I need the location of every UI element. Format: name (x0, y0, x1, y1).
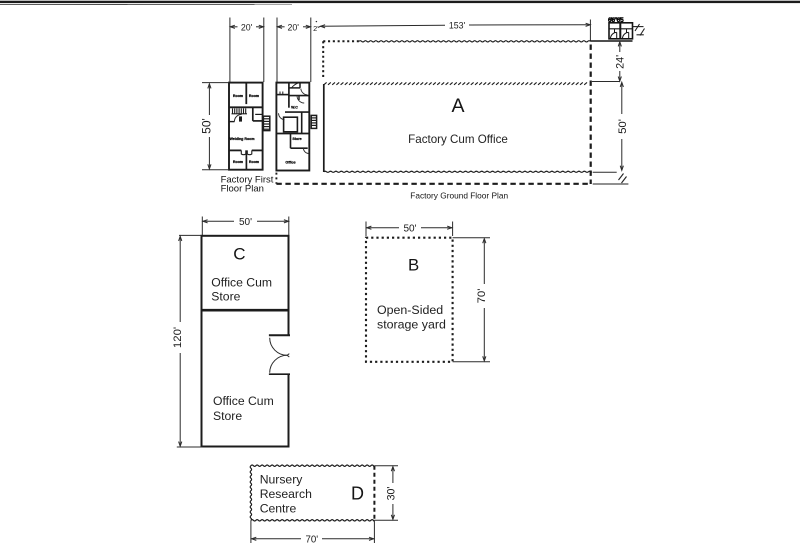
svg-text:Store: Store (213, 409, 242, 423)
svg-text:Centre: Centre (260, 501, 297, 515)
svg-text:Office Cum: Office Cum (211, 276, 272, 290)
svg-text:120': 120' (172, 327, 184, 348)
svg-text:D: D (351, 484, 364, 504)
svg-text:Store: Store (211, 289, 240, 303)
svg-text:Nursery: Nursery (260, 472, 304, 486)
svg-text:50': 50' (617, 119, 629, 134)
svg-text:Office Cum: Office Cum (213, 394, 274, 408)
svg-text:Open-Sided: Open-Sided (377, 303, 443, 317)
svg-text:50': 50' (239, 217, 252, 228)
svg-text:50': 50' (403, 223, 416, 234)
svg-text:70': 70' (305, 534, 318, 545)
svg-text:Welding Room: Welding Room (229, 137, 254, 141)
svg-text:C: C (233, 245, 245, 264)
svg-text:Store: Store (292, 137, 301, 141)
svg-text:W.C: W.C (291, 106, 298, 110)
svg-text:Room: Room (233, 160, 243, 164)
svg-text:6'6”6'5: 6'6”6'5 (608, 17, 624, 24)
svg-text:Room: Room (249, 160, 259, 164)
svg-text:2': 2' (313, 24, 319, 33)
svg-text:storage yard: storage yard (377, 317, 446, 331)
svg-text:20': 20' (287, 23, 299, 33)
svg-text:153': 153' (449, 21, 466, 31)
svg-text:Factory Ground Floor Plan: Factory Ground Floor Plan (410, 191, 508, 201)
svg-text:24': 24' (615, 55, 627, 69)
svg-text:Factory Cum Office: Factory Cum Office (408, 133, 508, 146)
svg-text:A: A (451, 95, 464, 117)
svg-text:Room: Room (249, 94, 259, 98)
svg-text:Floor Plan: Floor Plan (221, 183, 264, 194)
svg-text:30': 30' (386, 487, 398, 501)
svg-text:Office: Office (285, 160, 295, 164)
svg-text:Research: Research (260, 487, 312, 501)
svg-text:Room: Room (233, 94, 243, 98)
svg-text:70': 70' (476, 289, 488, 304)
svg-text:B: B (408, 256, 419, 275)
svg-text:20': 20' (241, 23, 253, 33)
svg-text:50': 50' (199, 118, 213, 134)
